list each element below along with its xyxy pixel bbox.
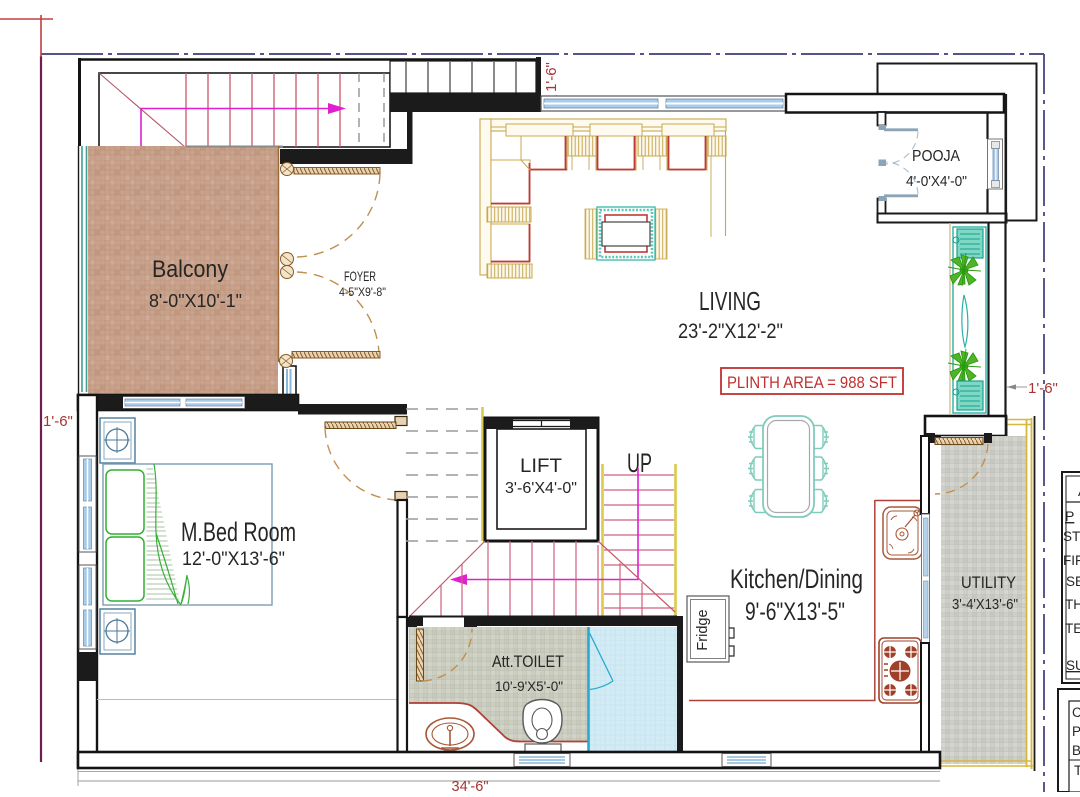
svg-text:FIF: FIF [1063, 553, 1080, 568]
svg-text:UP: UP [627, 448, 652, 478]
svg-text:P: P [1065, 508, 1074, 524]
svg-text:UTILITY: UTILITY [961, 573, 1016, 592]
svg-text:3'-6'X4'-0": 3'-6'X4'-0" [505, 480, 577, 497]
svg-text:12'-0"X13'-6": 12'-0"X13'-6" [182, 549, 285, 570]
svg-text:LIFT: LIFT [520, 456, 562, 477]
svg-text:10'-9'X5'-0": 10'-9'X5'-0" [495, 678, 563, 694]
svg-text:1'-6": 1'-6" [543, 62, 560, 92]
svg-text:34'-6": 34'-6" [452, 779, 489, 792]
svg-text:C: C [1072, 705, 1080, 720]
svg-text:SU: SU [1066, 658, 1080, 673]
svg-text:1'-6": 1'-6" [1028, 380, 1058, 397]
svg-text:9'-6"X13'-5": 9'-6"X13'-5" [745, 598, 845, 626]
svg-text:Balcony: Balcony [152, 256, 228, 283]
svg-text:POOJA: POOJA [912, 148, 961, 165]
svg-text:Kitchen/Dining: Kitchen/Dining [730, 564, 863, 594]
svg-text:P: P [1072, 724, 1080, 739]
svg-text:8'-0"X10'-1": 8'-0"X10'-1" [149, 291, 242, 311]
svg-text:PLINTH AREA = 988 SFT: PLINTH AREA = 988 SFT [727, 373, 897, 392]
svg-text:ST: ST [1063, 529, 1080, 544]
svg-text:FOYER: FOYER [344, 268, 376, 284]
svg-text:23'-2"X12'-2": 23'-2"X12'-2" [678, 319, 783, 343]
svg-text:T: T [1074, 763, 1080, 778]
svg-text:M.Bed Room: M.Bed Room [181, 517, 296, 547]
svg-text:4-5"X9'-8": 4-5"X9'-8" [339, 287, 386, 299]
svg-text:1'-6": 1'-6" [43, 413, 73, 430]
svg-text:SE: SE [1066, 574, 1080, 589]
svg-text:B: B [1072, 743, 1080, 758]
svg-text:Att.TOILET: Att.TOILET [492, 652, 564, 671]
svg-text:3'-4'X13'-6": 3'-4'X13'-6" [952, 596, 1018, 613]
svg-text:4'-0'X4'-0": 4'-0'X4'-0" [906, 173, 967, 190]
svg-text:Fridge: Fridge [695, 609, 711, 650]
svg-text:TE: TE [1065, 621, 1080, 636]
svg-text:TH: TH [1065, 597, 1080, 612]
svg-text:LIVING: LIVING [699, 286, 761, 316]
